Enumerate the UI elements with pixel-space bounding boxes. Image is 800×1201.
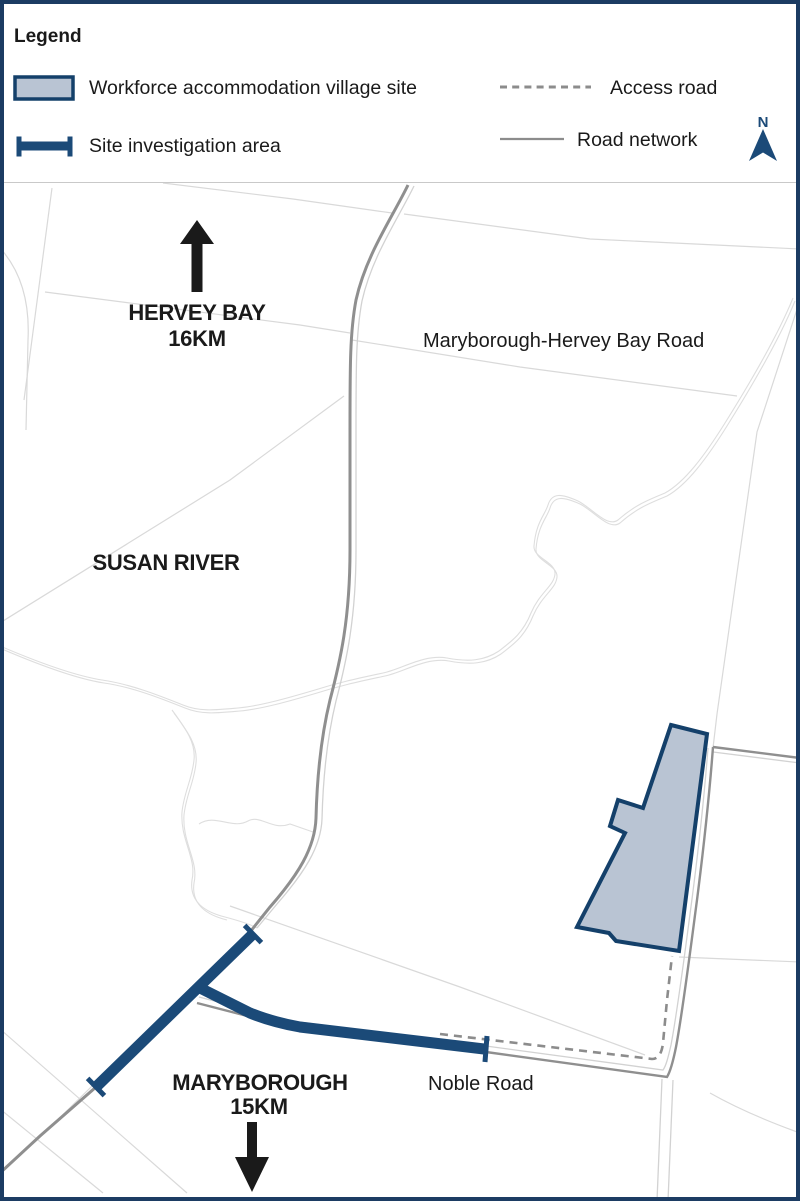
label-maryborough: MARYBOROUGH — [172, 1070, 348, 1095]
north-arrow-label: N — [758, 114, 769, 131]
legend-label-road-network: Road network — [577, 129, 698, 151]
label-main-road: Maryborough-Hervey Bay Road — [423, 330, 704, 352]
map-canvas: HERVEY BAY 16KM Maryborough-Hervey Bay R… — [4, 183, 796, 1197]
village-site-swatch-icon — [15, 77, 73, 99]
investigation-area-icon — [19, 137, 70, 157]
legend-title: Legend — [14, 26, 82, 47]
legend-label-access-road: Access road — [610, 77, 717, 99]
legend-label-village-site: Workforce accommodation village site — [89, 77, 417, 99]
legend-label-investigation-area: Site investigation area — [89, 135, 281, 157]
label-hervey-bay: HERVEY BAY — [128, 300, 266, 325]
label-susan-river: SUSAN RIVER — [92, 550, 239, 575]
map-figure: Legend Workforce accommodation village s… — [0, 0, 800, 1201]
label-noble-road: Noble Road — [428, 1073, 534, 1095]
label-maryborough-distance: 15KM — [230, 1094, 288, 1119]
label-hervey-bay-distance: 16KM — [168, 326, 226, 351]
north-arrow-icon: N — [749, 114, 777, 161]
legend-canvas: Legend Workforce accommodation village s… — [4, 4, 796, 182]
north-arrow-triangle — [749, 129, 777, 161]
legend: Legend Workforce accommodation village s… — [4, 4, 796, 183]
